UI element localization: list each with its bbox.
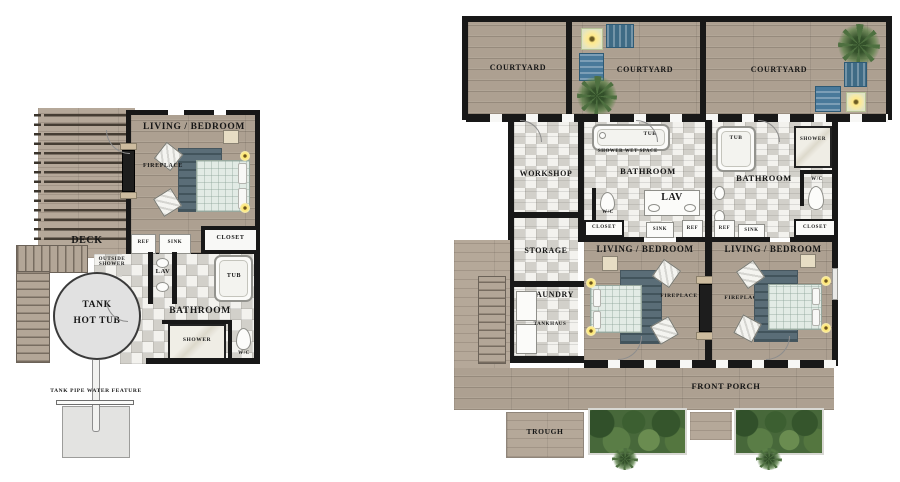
workshop-label: WORKSHOP <box>510 170 582 179</box>
left-stairs-top <box>16 245 88 273</box>
bed-pillow <box>593 289 601 307</box>
unit-left-living-label: LIVING / BEDROOM <box>588 245 702 255</box>
unit-left-closet-label: CLOSET <box>585 225 623 230</box>
pipe-crossbar <box>56 400 134 405</box>
lav-sink <box>684 204 696 212</box>
wall-sconce <box>821 276 831 286</box>
left-stairs-side <box>16 271 50 363</box>
left-side-table <box>223 130 239 144</box>
right-stairs <box>478 276 506 364</box>
storage-label: STORAGE <box>510 247 582 256</box>
patio-lounger <box>815 86 841 112</box>
pipe-tip <box>92 406 100 432</box>
left-closet-label: CLOSET <box>205 235 256 241</box>
unit-left-lav-label: LAV <box>652 193 692 204</box>
wall-sconce <box>821 323 831 333</box>
left-sink-label: SINK <box>159 240 191 245</box>
wall <box>148 252 153 304</box>
wall <box>566 20 572 116</box>
front-porch-label: FRONT PORCH <box>666 382 786 391</box>
unit-right-bathroom-label: BATHROOM <box>720 174 808 183</box>
front-window-wall <box>584 360 836 368</box>
palm-plant <box>577 76 617 116</box>
unit-left-fireplace-label: FIREPLACE <box>654 294 704 300</box>
courtyard-1-label: COURTYARD <box>473 64 563 73</box>
washer <box>516 291 537 321</box>
wall <box>254 252 260 364</box>
fire-table <box>846 92 866 112</box>
wall <box>228 322 232 362</box>
right-wall-window <box>832 268 838 300</box>
unit-right-wc-label: W/C <box>806 177 828 182</box>
palm-plant <box>838 24 880 66</box>
left-lav-label: LAV <box>150 268 176 275</box>
unit-left-wc-label: W/C <box>598 210 618 215</box>
left-outside-shower-label: OUTSIDE SHOWER <box>88 257 136 268</box>
unit-right-sink-label: SINK <box>738 228 765 233</box>
courtyard-2-label: COURTYARD <box>602 66 688 75</box>
left-wall-sconce <box>240 151 250 161</box>
left-deck-slat-ticks <box>34 112 41 240</box>
wall-sconce <box>586 278 596 288</box>
wall-sconce <box>586 326 596 336</box>
patio-chair <box>844 62 867 87</box>
planter-greenery <box>734 408 824 455</box>
bed-pillow <box>812 309 820 326</box>
planter-overflow <box>612 448 638 470</box>
left-wc-label: W/C <box>234 351 254 356</box>
planter-overflow <box>756 448 782 470</box>
left-bed-pillow <box>238 163 247 184</box>
unit-left-toilet <box>600 192 615 212</box>
planter-greenery <box>588 408 687 455</box>
unit-right-ref-label: REF <box>714 226 735 231</box>
unit-right-tub <box>716 126 756 172</box>
wall <box>700 20 706 116</box>
left-tub-label: TUB <box>218 273 250 279</box>
unit-left-bathroom-label: BATHROOM <box>604 167 692 176</box>
left-lav-sink <box>156 258 169 268</box>
lav-sink <box>648 204 660 212</box>
unit-right-closet-label: CLOSET <box>795 225 835 230</box>
unit-right-shower-label: SHOWER <box>795 137 831 142</box>
unit-right-toilet <box>808 186 824 210</box>
dryer <box>516 324 537 354</box>
wall <box>508 356 584 363</box>
left-shower-label: SHOWER <box>170 338 224 344</box>
patio-chair <box>606 24 634 48</box>
fire-table <box>581 28 603 50</box>
left-toilet <box>236 328 251 350</box>
side-table <box>602 256 618 271</box>
left-ref-label: REF <box>131 240 156 245</box>
lav-sink <box>714 186 725 200</box>
left-wall-sconce <box>240 203 250 213</box>
left-living-window-gap <box>214 110 226 115</box>
tub-faucet <box>599 132 606 139</box>
wall <box>592 188 596 222</box>
left-fireplace-label: FIREPLACE <box>137 163 189 169</box>
unit-right-tub-label: TUB <box>722 136 750 142</box>
wall <box>800 170 832 174</box>
entry-walkway <box>690 412 732 440</box>
left-lav-sink <box>156 282 169 292</box>
trough-label: TROUGH <box>510 428 580 436</box>
water-feature-label: TANK PIPE WATER FEATURE <box>40 389 152 395</box>
left-fireplace-cap <box>120 192 137 199</box>
shower-wet-space-label: SHOWER WET SPACE <box>592 149 664 154</box>
wall <box>832 120 838 366</box>
courtyard-3-label: COURTYARD <box>736 66 822 75</box>
left-bathroom-label: BATHROOM <box>156 306 244 316</box>
left-fireplace <box>122 150 135 192</box>
wall <box>146 358 260 364</box>
unit-left-sink-label: SINK <box>646 227 674 232</box>
courtyard-door-wall <box>466 114 888 122</box>
unit-right-shower-room <box>794 126 832 168</box>
bed-pillow <box>812 288 820 305</box>
left-living-window-gap <box>168 110 184 115</box>
unit-left-ref-label: REF <box>682 226 703 231</box>
tankhaus-label: TANKHAUS <box>522 322 578 327</box>
side-table <box>800 254 816 268</box>
wall <box>172 252 177 304</box>
wall <box>800 170 804 206</box>
